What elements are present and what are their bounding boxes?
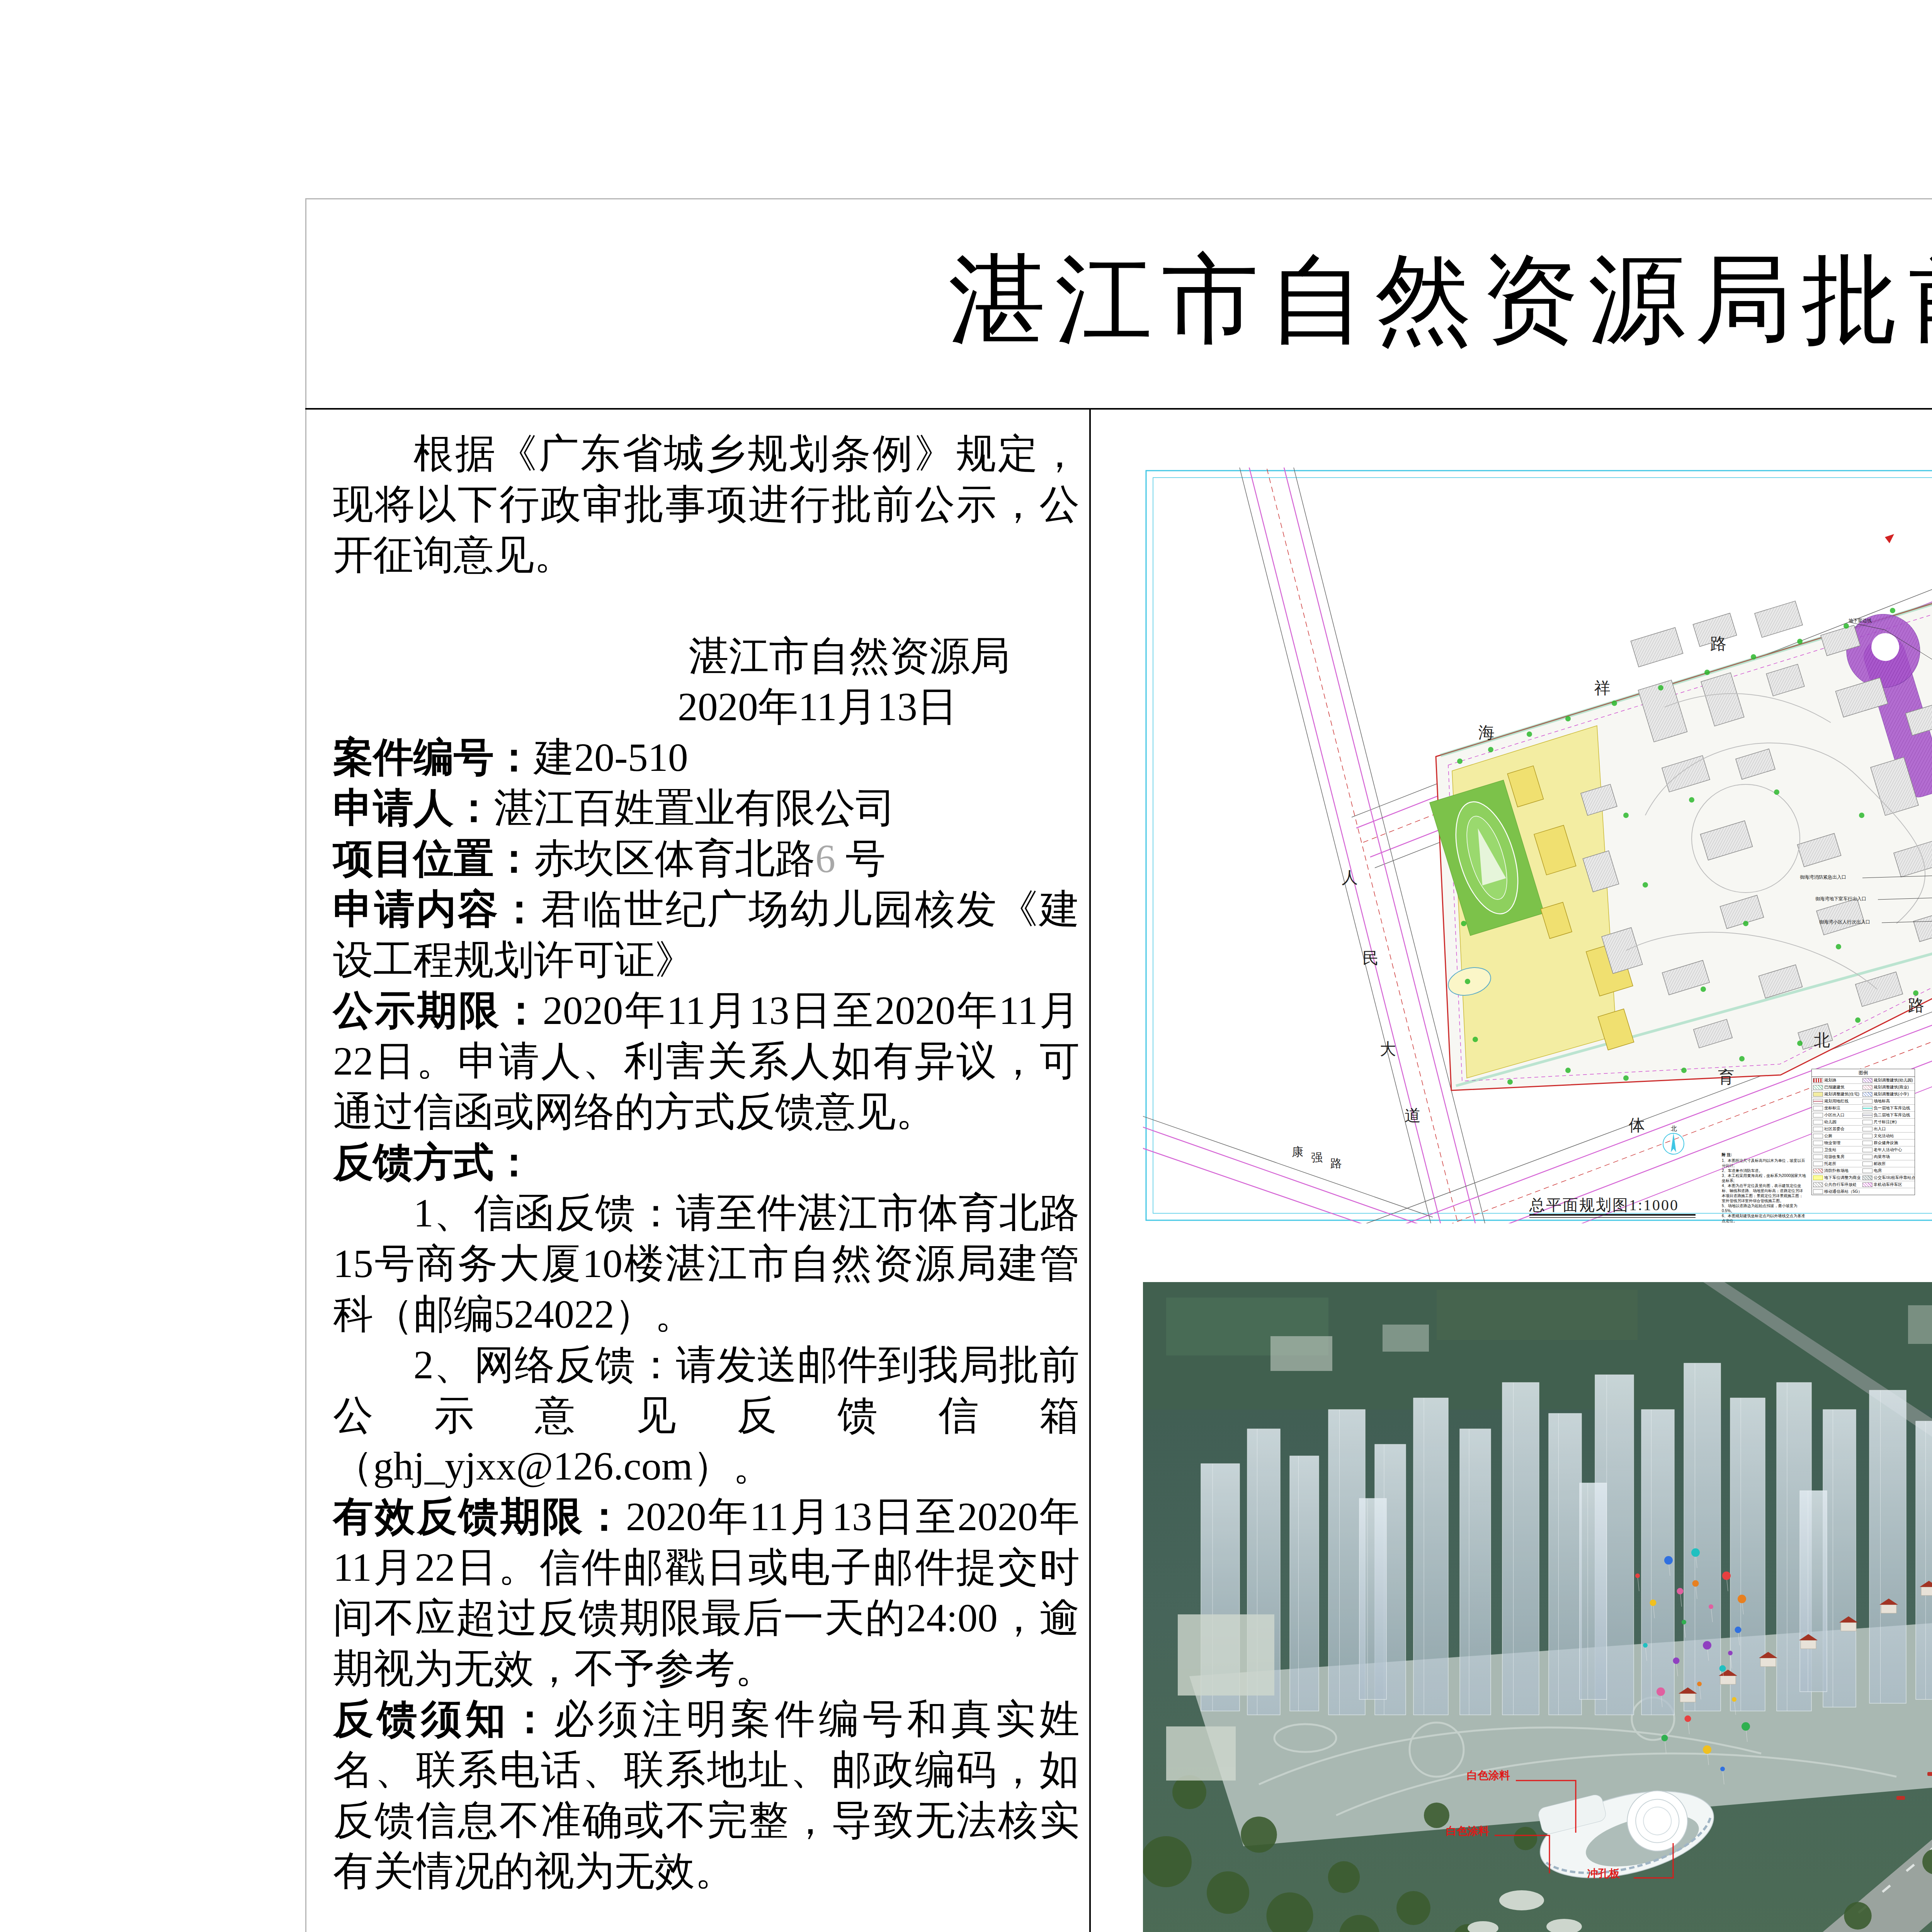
legend-row: 社区居委会出入口 — [1812, 1126, 1915, 1133]
legend-label: 电房 — [1874, 1168, 1915, 1173]
legend-swatch — [1813, 1155, 1823, 1159]
legend-swatch — [1862, 1190, 1872, 1194]
legend-swatch — [1813, 1148, 1823, 1152]
road-char: 强 — [1311, 1151, 1323, 1164]
tower — [1580, 1483, 1607, 1699]
tree-icon — [1701, 986, 1706, 992]
valid-period-row: 有效反馈期限：2020年11月13日至2020年11月22日。信件邮戳日或电子邮… — [333, 1491, 1080, 1694]
legend-label: 物业管理 — [1824, 1140, 1861, 1146]
balloon — [1656, 1687, 1665, 1696]
legend-label: 规划调整建筑(住宅) — [1824, 1092, 1861, 1097]
column-divider — [1089, 408, 1091, 1932]
balloon — [1697, 1682, 1702, 1686]
legend-swatch — [1813, 1092, 1823, 1097]
road-char: 体 — [1629, 1116, 1645, 1134]
garage-entrance-label: 御海湾地下室车行出入口 — [1815, 896, 1866, 902]
case-number-value: 建20-510 — [534, 735, 688, 779]
plan-legend: 图例 规划路规划调整建筑(幼儿园)已报建建筑规划调整建筑(商业)规划调整建筑(住… — [1811, 1069, 1915, 1195]
content-label: 申请内容： — [333, 886, 541, 931]
plan-note: 4、本图为总平定位及竖向图，表示建筑定位坐标、轴线和道路、场地竖向标高；道路定位… — [1722, 1183, 1806, 1203]
legend-swatch — [1862, 1092, 1872, 1097]
balloon — [1709, 1604, 1713, 1609]
legend-label: 规划调整建筑(商业) — [1874, 1085, 1915, 1090]
legend-label: 老年人活动中心 — [1874, 1147, 1915, 1153]
tower — [1684, 1363, 1721, 1711]
notice-text-column: 根据《广东省城乡规划条例》规定，现将以下行政审批事项进行批前公示，公开征询意见。… — [333, 428, 1080, 1896]
legend-swatch — [1813, 1134, 1823, 1138]
plan-note: 6、本图规划建筑坐标定点均以外墙线交点为基准点定位。 — [1722, 1213, 1806, 1223]
tree-mass — [1241, 1816, 1277, 1853]
tree-icon — [1774, 789, 1779, 795]
feedback-method-heading: 反馈方式： — [333, 1137, 1080, 1187]
aerial-rendering: 白色涂料 白色涂料 冲孔板 — [1143, 1282, 1932, 1932]
legend-label: 托老所 — [1824, 1161, 1861, 1167]
legend-row: 公厕文化活动站 — [1812, 1133, 1915, 1139]
road-char: 路 — [1710, 635, 1726, 653]
plan-title-group: 总平面规划图1:1000 — [1529, 1196, 1696, 1218]
tree-icon — [1681, 1068, 1687, 1073]
legend-swatch — [1862, 1078, 1872, 1083]
fire-entrance-label: 御海湾消防紧急出入口 — [1800, 874, 1846, 881]
tower — [1800, 1491, 1827, 1692]
legend-row: 坐标标注负一层地下车库边线 — [1812, 1105, 1915, 1112]
page-title: 湛江市自然资源局批前公示 — [305, 235, 1932, 367]
legend-swatch — [1813, 1162, 1823, 1166]
tower — [1359, 1498, 1386, 1699]
balloon — [1742, 1722, 1750, 1731]
tree-icon — [1913, 990, 1918, 996]
period-label: 公示期限： — [333, 988, 543, 1032]
legend-swatch — [1813, 1189, 1823, 1194]
tree-mass — [1207, 1871, 1249, 1914]
balloon — [1722, 1571, 1731, 1580]
balloon — [1738, 1595, 1746, 1603]
legend-swatch — [1813, 1106, 1823, 1111]
road-char: 民 — [1362, 949, 1379, 967]
legend-swatch — [1862, 1099, 1872, 1104]
balloon — [1685, 1716, 1691, 1722]
legend-label: 规划路 — [1824, 1078, 1861, 1083]
legend-label: 出入口 — [1874, 1126, 1915, 1132]
legend-label: 公共自行车停放处 — [1824, 1182, 1861, 1187]
legend-swatch — [1862, 1085, 1872, 1090]
plan-title: 总平面规划图1:1000 — [1529, 1196, 1679, 1214]
applicant-row: 申请人：湛江百姓置业有限公司 — [333, 782, 1080, 833]
legend-label: 公交车/出租车停靠站点 — [1874, 1175, 1915, 1180]
balloon — [1664, 1556, 1673, 1565]
balloon — [1650, 1600, 1656, 1606]
legend-label: 社区居委会 — [1824, 1126, 1861, 1132]
tower — [1460, 1429, 1491, 1715]
legend-swatch — [1862, 1162, 1872, 1166]
public-notice-page: { "page": { "title": "湛江市自然资源局批前公示" }, "… — [0, 0, 1932, 1932]
period-row: 公示期限：2020年11月13日至2020年11月22日。申请人、利害关系人如有… — [333, 985, 1080, 1137]
case-number-row: 案件编号：建20-510 — [333, 732, 1080, 782]
tree-icon — [1457, 759, 1463, 764]
legend-swatch — [1862, 1113, 1872, 1117]
tower — [1290, 1456, 1319, 1711]
legend-label: 文化活动站 — [1874, 1133, 1915, 1139]
tower — [1869, 1390, 1906, 1703]
balloon — [1720, 1767, 1725, 1771]
tree-icon — [1623, 1075, 1629, 1081]
legend-swatch — [1813, 1099, 1823, 1104]
site-plan-drawing: 北 海 祥 路 人 民 大 道 康 强 路 体 育 北 路 总平面规划图1:10… — [1143, 468, 1932, 1223]
road-char: 人 — [1342, 869, 1358, 886]
legend-swatch — [1813, 1127, 1823, 1131]
legend-label: 公厕 — [1824, 1133, 1861, 1139]
location-value: 赤坎区体育北路 — [534, 836, 815, 881]
tower — [1549, 1413, 1582, 1715]
location-number: 6 — [815, 836, 835, 881]
legend-label: 小区出入口 — [1824, 1112, 1861, 1118]
legend-label: 肉菜市场 — [1874, 1154, 1915, 1160]
balloon — [1692, 1580, 1699, 1587]
applicant-value: 湛江百姓置业有限公司 — [494, 786, 896, 830]
tree-mass — [1143, 1836, 1192, 1887]
tree-icon — [1623, 813, 1629, 818]
tree-icon — [1643, 882, 1648, 888]
legend-swatch — [1862, 1148, 1872, 1152]
material-annotation: 白色涂料 — [1467, 1768, 1510, 1783]
legend-label: 垃圾收集房 — [1824, 1154, 1861, 1160]
legend-swatch — [1813, 1141, 1823, 1145]
tree-icon — [1797, 1041, 1803, 1046]
legend-swatch — [1813, 1113, 1823, 1117]
balloon — [1677, 1588, 1684, 1595]
tree-icon — [1461, 921, 1466, 926]
legend-label: 坐标标注 — [1824, 1105, 1861, 1111]
case-number-label: 案件编号： — [333, 735, 534, 779]
legend-label: 尺寸标注(米) — [1874, 1119, 1915, 1125]
legend-label: 幼儿园 — [1824, 1119, 1861, 1125]
tree-icon — [1743, 921, 1748, 926]
legend-swatch — [1813, 1175, 1823, 1180]
feedback-mail-paragraph: 1、信函反馈：请至件湛江市体育北路15号商务大厦10楼湛江市自然资源局建管科（邮… — [333, 1187, 1080, 1339]
legend-row: 垃圾收集房肉菜市场 — [1812, 1153, 1915, 1160]
plan-notes-title: 附 注: — [1722, 1152, 1806, 1157]
legend-row: 公共自行车停放处非机动车停车区 — [1812, 1181, 1915, 1188]
tree-icon — [1612, 701, 1617, 706]
tree-icon — [1751, 654, 1756, 660]
tree-icon — [1507, 1079, 1513, 1085]
legend-row: 规划用地红线场地标高 — [1812, 1098, 1915, 1105]
material-annotation: 冲孔板 — [1587, 1866, 1620, 1881]
plan-note: 3、本工程采用黄海高程，坐标系为2000国家大地坐标系; — [1722, 1173, 1806, 1183]
tree-icon — [1473, 1037, 1478, 1042]
legend-row: 移动通信基站（5G） — [1812, 1188, 1915, 1195]
legend-label: 规划用地红线 — [1824, 1099, 1861, 1104]
valid-period-label: 有效反馈期限： — [333, 1494, 626, 1539]
tree-icon — [1689, 797, 1694, 803]
legend-swatch — [1862, 1141, 1872, 1145]
legend-label: 负二层地下车库边线 — [1874, 1112, 1915, 1118]
feedback-online-paragraph: 2、网络反馈：请发送邮件到我局批前公示意见反馈信箱（ghj_yjxx@126.c… — [333, 1339, 1080, 1491]
location-row: 项目位置：赤坎区体育北路6 号 — [333, 833, 1080, 884]
legend-swatch — [1862, 1168, 1872, 1173]
legend-swatch — [1813, 1182, 1823, 1187]
pedestrian-entrance-label: 御海湾小区人行次出入口 — [1819, 919, 1870, 925]
plan-notes: 附 注: 1、本图所注尺寸及标高均以米为单位，坡度以百分比计;2、车道兼作消防车… — [1722, 1152, 1806, 1223]
road-char: 北 — [1814, 1031, 1830, 1049]
tree-icon — [1739, 1056, 1745, 1061]
north-label: 北 — [1671, 1125, 1677, 1132]
legend-row: 幼儿园尺寸标注(米) — [1812, 1119, 1915, 1126]
location-label: 项目位置： — [333, 836, 534, 881]
intro-paragraph: 根据《广东省城乡规划条例》规定，现将以下行政审批事项进行批前公示，公开征询意见。 — [333, 428, 1080, 580]
notice-label: 反馈须知： — [333, 1696, 554, 1741]
legend-swatch — [1813, 1168, 1823, 1173]
tree-icon — [1565, 1068, 1571, 1073]
issuer-line: 湛江市自然资源局 — [333, 631, 1080, 681]
road-char: 大 — [1380, 1040, 1396, 1058]
content-row: 申请内容：君临世纪广场幼儿园核发《建设工程规划许可证》 — [333, 884, 1080, 985]
legend-label: 规划调整建筑(小学) — [1874, 1092, 1915, 1097]
title-divider — [305, 408, 1932, 410]
legend-row: 卫生站老年人活动中心 — [1812, 1146, 1915, 1153]
tower — [1413, 1398, 1448, 1715]
notice-row: 反馈须知：必须注明案件编号和真实姓名、联系电话、联系地址、邮政编码，如反馈信息不… — [333, 1694, 1080, 1896]
tree-mass — [1396, 1891, 1430, 1925]
road-char: 育 — [1718, 1068, 1734, 1086]
legend-label: 群众健身设施 — [1874, 1140, 1915, 1146]
plan-note: 2、车道兼作消防车道。 — [1722, 1168, 1806, 1173]
legend-swatch — [1862, 1127, 1872, 1131]
balloon — [1732, 1697, 1736, 1702]
tree-mass — [1844, 1902, 1872, 1930]
tree-icon — [1855, 1017, 1861, 1023]
tree-icon — [1658, 685, 1663, 690]
plan-note: 1、本图所注尺寸及标高均以米为单位，坡度以百分比计; — [1722, 1158, 1806, 1168]
road-char: 路 — [1908, 997, 1924, 1014]
tree-icon — [1565, 716, 1571, 721]
tower — [1916, 1421, 1932, 1699]
legend-row: 地下车位调整为商业公交车/出租车停靠站点 — [1812, 1174, 1915, 1181]
tree-icon — [1488, 747, 1493, 752]
legend-label: 卫生站 — [1824, 1147, 1861, 1153]
road-char: 祥 — [1594, 679, 1611, 697]
legend-label: 非机动车停车区 — [1874, 1182, 1915, 1187]
legend-label: 负一层地下车库边线 — [1874, 1105, 1915, 1111]
balloon — [1673, 1658, 1680, 1664]
legend-swatch — [1862, 1120, 1872, 1124]
balloon — [1703, 1641, 1711, 1650]
legend-swatch — [1862, 1106, 1872, 1111]
legend-swatch — [1862, 1134, 1872, 1138]
tree-icon — [1704, 670, 1710, 675]
balloon — [1703, 1745, 1711, 1754]
location-suffix: 号 — [835, 836, 886, 881]
balloon — [1735, 1627, 1742, 1633]
balloon — [1728, 1651, 1733, 1655]
legend-row: 小区出入口负二层地下车库边线 — [1812, 1112, 1915, 1119]
legend-label: 规划调整建筑(幼儿园) — [1874, 1078, 1915, 1083]
tower — [1823, 1410, 1856, 1707]
legend-row: 托老所邮政所 — [1812, 1160, 1915, 1167]
legend-title: 图例 — [1812, 1069, 1915, 1077]
legend-label: 消防扑救场地 — [1824, 1168, 1861, 1173]
legend-row: 规划路规划调整建筑(幼儿园) — [1812, 1077, 1915, 1084]
balloon — [1643, 1643, 1648, 1648]
legend-label: 场地标高 — [1874, 1099, 1915, 1104]
tree-icon — [1890, 608, 1895, 613]
legend-swatch — [1813, 1085, 1823, 1090]
balloon — [1719, 1665, 1726, 1672]
legend-label: 地下车位调整为商业 — [1824, 1175, 1861, 1180]
tower — [1502, 1383, 1539, 1715]
legend-swatch — [1862, 1155, 1872, 1159]
road-char: 海 — [1478, 724, 1495, 742]
tower — [1730, 1398, 1765, 1711]
road-char: 康 — [1292, 1145, 1303, 1158]
legend-label: 移动通信基站（5G） — [1824, 1189, 1861, 1194]
tree-icon — [1859, 813, 1864, 818]
tree-icon — [1527, 731, 1532, 737]
tree-mass — [1514, 1827, 1537, 1850]
legend-swatch — [1813, 1078, 1823, 1083]
legend-row: 已报建建筑规划调整建筑(商业) — [1812, 1084, 1915, 1091]
tree-icon — [1797, 639, 1803, 644]
balloon — [1662, 1735, 1668, 1742]
tree-icon — [1844, 623, 1849, 629]
legend-row: 消防扑救场地电房 — [1812, 1167, 1915, 1174]
legend-swatch — [1862, 1182, 1872, 1187]
road-char: 路 — [1330, 1157, 1342, 1170]
legend-swatch — [1862, 1175, 1872, 1180]
tree-mass — [1328, 1861, 1360, 1893]
legend-row: 物业管理群众健身设施 — [1812, 1139, 1915, 1146]
plan-note: 5、场地以道路边为起始点找坡，最小坡度为0.5%。 — [1722, 1203, 1806, 1213]
material-annotation: 白色涂料 — [1446, 1824, 1489, 1838]
applicant-label: 申请人： — [333, 785, 494, 830]
balloon — [1682, 1620, 1686, 1624]
issue-date-line: 2020年11月13日 — [333, 681, 1080, 732]
basement-edge-label: 地下室边线 — [1849, 617, 1872, 624]
tree-icon — [1465, 979, 1470, 984]
balloon — [1691, 1548, 1700, 1557]
legend-row: 规划调整建筑(住宅)规划调整建筑(小学) — [1812, 1091, 1915, 1098]
legend-label: 已报建建筑 — [1824, 1085, 1861, 1090]
road-char: 道 — [1405, 1107, 1421, 1124]
balloon — [1635, 1573, 1640, 1578]
legend-label: 邮政所 — [1874, 1161, 1915, 1167]
rendering-svg — [1143, 1282, 1932, 1932]
legend-swatch — [1813, 1120, 1823, 1124]
tree-icon — [1836, 944, 1841, 949]
